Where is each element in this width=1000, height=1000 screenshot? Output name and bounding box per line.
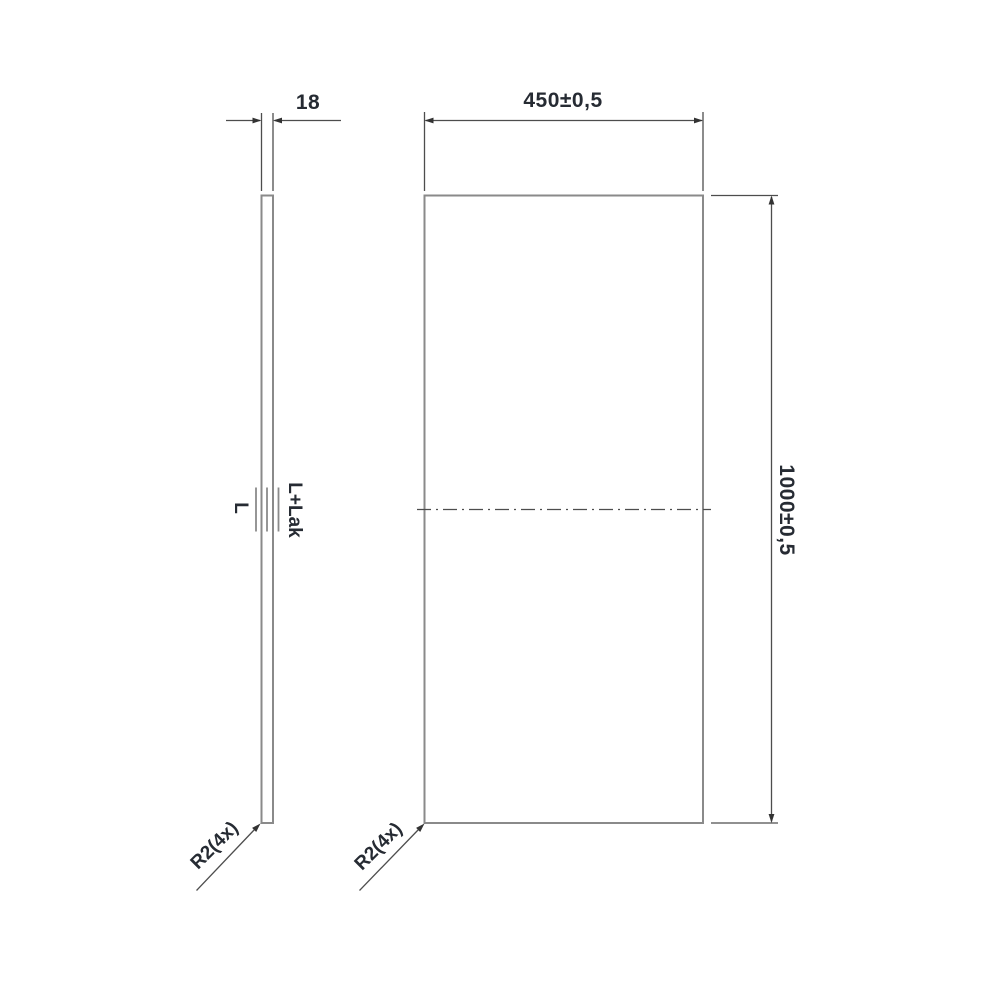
surface-finish-label: L+Lak bbox=[283, 482, 305, 537]
arrowhead-icon bbox=[425, 118, 434, 124]
width-dimension-line bbox=[425, 112, 704, 191]
technical-drawing-canvas: 18 450±0,5 1000±0,5 L L+Lak R2(4x) R2(4x… bbox=[0, 0, 1000, 1000]
arrowhead-icon bbox=[253, 118, 262, 124]
height-dimension-label: 1000±0,5 bbox=[774, 464, 798, 555]
width-dimension-label: 450±0,5 bbox=[523, 89, 602, 113]
height-dimension-line bbox=[711, 196, 778, 824]
thickness-dimension-line bbox=[226, 113, 341, 191]
arrowhead-icon bbox=[694, 118, 703, 124]
thickness-dimension-label: 18 bbox=[296, 91, 320, 115]
core-material-label: L bbox=[229, 502, 251, 514]
drawing-linework bbox=[0, 0, 1000, 1000]
arrowhead-icon bbox=[769, 814, 775, 823]
edge-band-hatch bbox=[256, 488, 279, 532]
arrowhead-icon bbox=[769, 196, 775, 205]
arrowhead-icon bbox=[273, 118, 282, 124]
